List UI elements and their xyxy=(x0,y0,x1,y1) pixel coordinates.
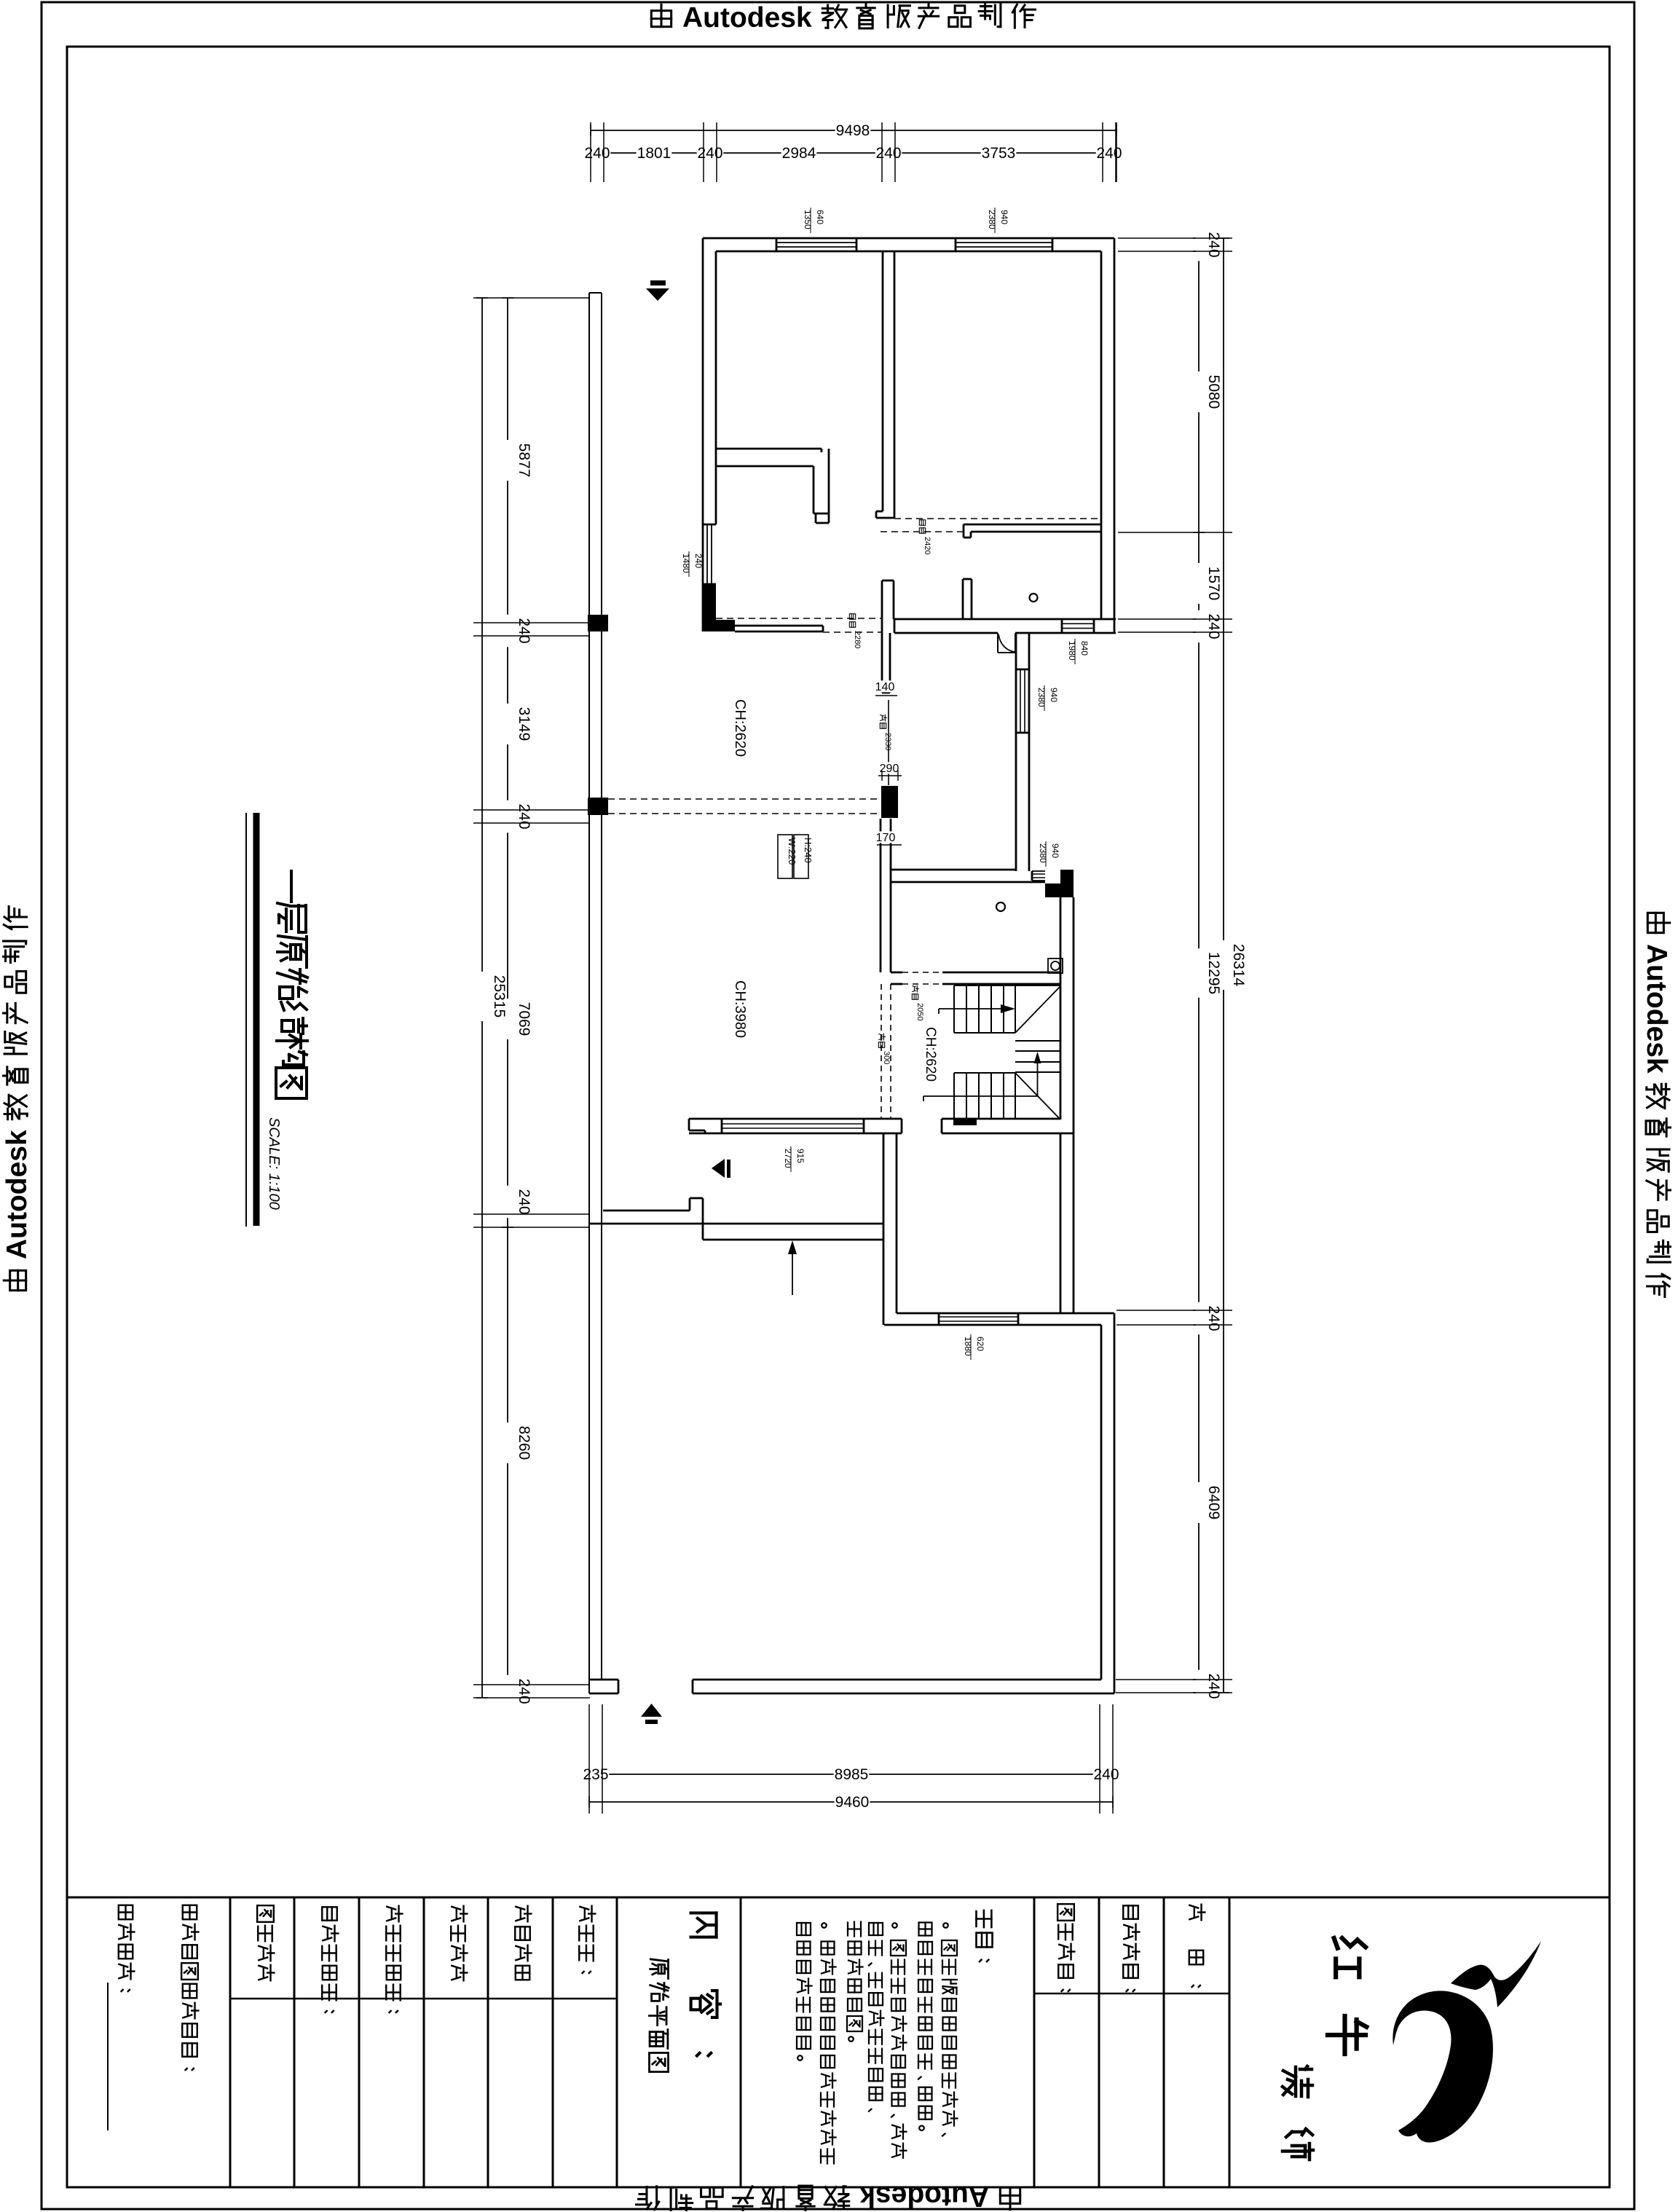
svg-text:1350: 1350 xyxy=(803,210,813,229)
svg-text:240: 240 xyxy=(516,803,532,829)
svg-text:940: 940 xyxy=(999,210,1009,224)
svg-text:5877: 5877 xyxy=(516,444,532,478)
svg-text:SCALE: 1:100: SCALE: 1:100 xyxy=(266,1117,282,1210)
svg-text:Autodesk: Autodesk xyxy=(1641,944,1672,1074)
svg-text:2050: 2050 xyxy=(915,1003,924,1020)
svg-text:8985: 8985 xyxy=(835,1766,869,1783)
svg-text:640: 640 xyxy=(815,210,825,224)
svg-text:2420: 2420 xyxy=(923,537,931,554)
svg-text:2380: 2380 xyxy=(987,210,997,229)
svg-text:240: 240 xyxy=(516,618,532,643)
svg-text:2380: 2380 xyxy=(1036,688,1047,707)
svg-text:H:240: H:240 xyxy=(803,838,814,863)
svg-text:26314: 26314 xyxy=(1230,944,1247,987)
svg-text:1801: 1801 xyxy=(637,145,671,162)
svg-text:140: 140 xyxy=(875,681,895,693)
svg-text:1570: 1570 xyxy=(1205,567,1222,601)
svg-text:5080: 5080 xyxy=(1205,375,1222,409)
svg-text:840: 840 xyxy=(1079,641,1090,656)
svg-text:915: 915 xyxy=(795,1149,805,1163)
svg-text:CH:2620: CH:2620 xyxy=(732,699,748,757)
svg-text:240: 240 xyxy=(1093,1766,1119,1783)
svg-text:9460: 9460 xyxy=(835,1794,870,1811)
svg-text:620: 620 xyxy=(975,1337,985,1351)
svg-text:240: 240 xyxy=(1205,1673,1222,1699)
svg-text:9498: 9498 xyxy=(836,122,870,139)
svg-text:240: 240 xyxy=(693,554,704,568)
svg-text:235: 235 xyxy=(583,1766,608,1783)
svg-text:2720: 2720 xyxy=(783,1149,793,1168)
svg-text:240: 240 xyxy=(1205,613,1222,639)
svg-text:Autodesk: Autodesk xyxy=(1,1130,33,1259)
svg-text:2330: 2330 xyxy=(883,733,892,750)
svg-text:2280: 2280 xyxy=(853,631,862,648)
svg-text:8260: 8260 xyxy=(516,1426,532,1460)
svg-text:1880: 1880 xyxy=(963,1337,973,1356)
svg-text:W:220: W:220 xyxy=(787,838,797,865)
svg-text:CH:3980: CH:3980 xyxy=(732,980,748,1038)
svg-text:300: 300 xyxy=(882,1051,891,1064)
svg-text:3753: 3753 xyxy=(982,145,1016,162)
svg-text:240: 240 xyxy=(516,1678,532,1704)
svg-text:940: 940 xyxy=(1049,688,1059,702)
svg-text:240: 240 xyxy=(697,145,722,162)
svg-text:940: 940 xyxy=(1050,843,1060,858)
svg-text:1980: 1980 xyxy=(1067,641,1077,661)
svg-text:240: 240 xyxy=(1096,145,1122,162)
svg-text:2380: 2380 xyxy=(1038,843,1048,863)
svg-text:170: 170 xyxy=(876,832,896,844)
svg-text:240: 240 xyxy=(1205,232,1222,257)
svg-text:1480: 1480 xyxy=(681,554,691,573)
svg-text:240: 240 xyxy=(875,145,901,162)
svg-text:3149: 3149 xyxy=(516,707,532,741)
svg-text:Autodesk: Autodesk xyxy=(859,2181,989,2212)
svg-text:12295: 12295 xyxy=(1205,952,1222,994)
svg-text:Autodesk: Autodesk xyxy=(682,2,812,34)
svg-text:2984: 2984 xyxy=(782,145,816,162)
svg-text:240: 240 xyxy=(1205,1305,1222,1331)
svg-text:6409: 6409 xyxy=(1205,1486,1222,1520)
svg-text:CH:2620: CH:2620 xyxy=(923,1027,938,1082)
svg-text:240: 240 xyxy=(584,145,610,162)
svg-text:7069: 7069 xyxy=(516,1002,532,1036)
svg-text:25315: 25315 xyxy=(491,975,508,1018)
svg-text:240: 240 xyxy=(516,1189,532,1214)
